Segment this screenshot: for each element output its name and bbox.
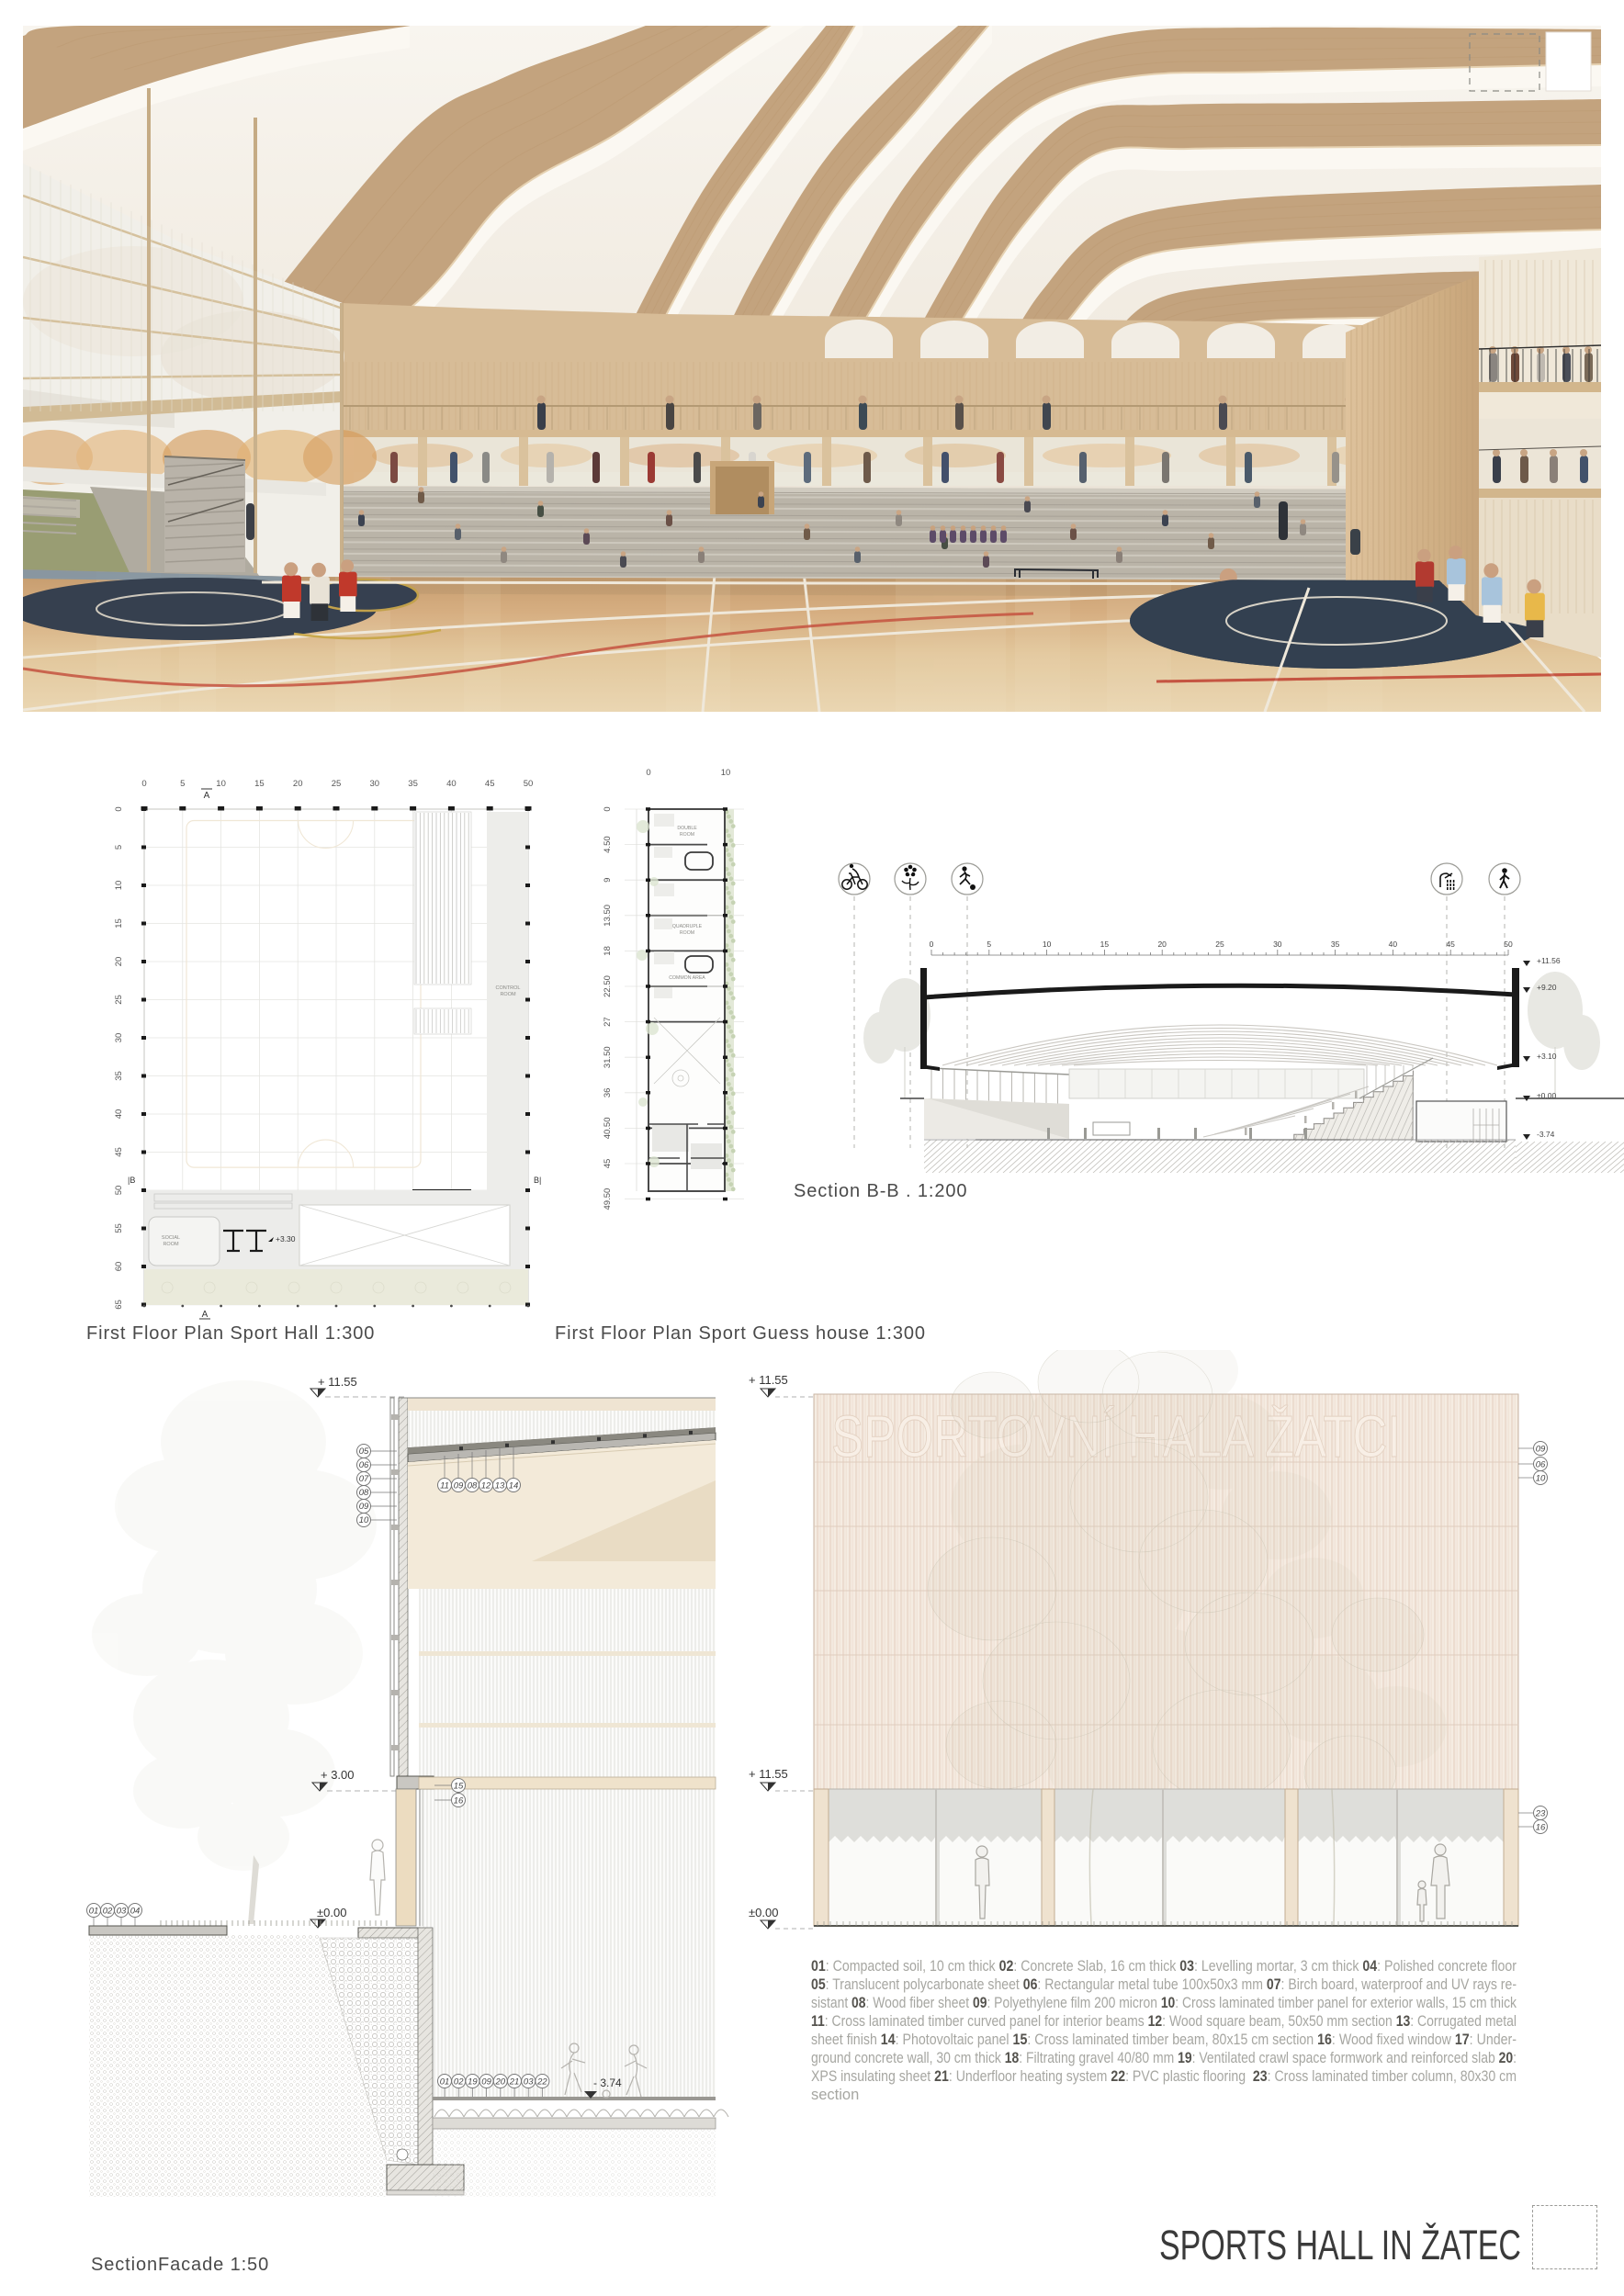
svg-text:13.50: 13.50: [603, 905, 613, 927]
svg-text:COMMON AREA: COMMON AREA: [669, 975, 705, 981]
svg-text:12: 12: [481, 1481, 491, 1491]
svg-text:- 3.74: - 3.74: [593, 2077, 622, 2089]
svg-text:45: 45: [114, 1147, 124, 1157]
svg-text:10: 10: [114, 881, 124, 891]
svg-text:21: 21: [509, 2077, 520, 2088]
svg-text:+ 3.00: + 3.00: [321, 1768, 355, 1782]
svg-text:ROOM: ROOM: [500, 992, 516, 997]
svg-text:ROOM: ROOM: [680, 832, 694, 838]
svg-text:±0.00: ±0.00: [1537, 1091, 1556, 1100]
svg-text:25: 25: [1215, 940, 1224, 949]
svg-text:25: 25: [114, 995, 124, 1005]
svg-text:ROOM: ROOM: [163, 1242, 179, 1247]
svg-text:09: 09: [359, 1502, 369, 1512]
svg-text:-3.74: -3.74: [1537, 1130, 1555, 1139]
svg-text:16: 16: [1536, 1823, 1546, 1833]
svg-text:0: 0: [646, 768, 650, 778]
svg-text:09: 09: [481, 2077, 491, 2088]
svg-text:15: 15: [254, 779, 265, 789]
svg-text:0: 0: [930, 940, 934, 949]
svg-text:06: 06: [359, 1460, 369, 1470]
svg-text:CONTROL: CONTROL: [496, 985, 521, 991]
svg-text:02: 02: [454, 2077, 464, 2088]
svg-text:35: 35: [408, 779, 418, 789]
svg-text:15: 15: [454, 1782, 464, 1792]
svg-text:02: 02: [103, 1907, 113, 1917]
svg-text:ROOM: ROOM: [680, 930, 694, 936]
svg-text:22: 22: [536, 2077, 547, 2088]
svg-text:20: 20: [495, 2077, 506, 2088]
svg-text:20: 20: [1157, 940, 1167, 949]
svg-text:DOUBLE: DOUBLE: [677, 826, 697, 831]
svg-text:±0.00: ±0.00: [749, 1906, 778, 1919]
svg-text:30: 30: [1273, 940, 1282, 949]
svg-text:45: 45: [603, 1159, 613, 1169]
svg-text:09: 09: [454, 1481, 464, 1491]
svg-text:01: 01: [440, 2077, 450, 2088]
svg-text:19: 19: [468, 2077, 478, 2088]
svg-text:|B: |B: [128, 1176, 135, 1185]
svg-text:01: 01: [89, 1907, 99, 1917]
svg-text:36: 36: [603, 1088, 613, 1098]
svg-text:09: 09: [1536, 1445, 1546, 1455]
svg-text:5: 5: [180, 779, 185, 789]
svg-text:30: 30: [114, 1033, 124, 1043]
svg-text:03: 03: [524, 2077, 534, 2088]
svg-text:27: 27: [603, 1017, 613, 1027]
svg-text:40: 40: [446, 779, 457, 789]
svg-text:60: 60: [114, 1262, 124, 1272]
svg-text:50: 50: [114, 1186, 124, 1196]
svg-text:+3.30: +3.30: [276, 1234, 296, 1244]
svg-text:10: 10: [359, 1515, 369, 1525]
svg-text:SOCIAL: SOCIAL: [162, 1235, 180, 1241]
svg-text:5: 5: [114, 845, 124, 850]
svg-text:4.50: 4.50: [603, 836, 613, 853]
svg-text:A: A: [204, 791, 210, 801]
svg-text:10: 10: [216, 779, 226, 789]
svg-text:18: 18: [603, 946, 613, 956]
svg-text:14: 14: [509, 1481, 519, 1491]
svg-text:B|: B|: [534, 1176, 541, 1185]
svg-text:40: 40: [114, 1109, 124, 1120]
svg-text:0: 0: [603, 806, 613, 811]
svg-text:50: 50: [524, 779, 534, 789]
svg-text:22.50: 22.50: [603, 975, 613, 997]
svg-text:15: 15: [1100, 940, 1110, 949]
svg-text:31.50: 31.50: [603, 1046, 613, 1068]
svg-text:20: 20: [293, 779, 303, 789]
svg-text:13: 13: [495, 1481, 505, 1491]
svg-text:10: 10: [1043, 940, 1052, 949]
svg-text:+9.20: +9.20: [1537, 983, 1557, 992]
svg-text:9: 9: [603, 878, 613, 883]
svg-text:5: 5: [987, 940, 991, 949]
svg-text:+11.56: +11.56: [1537, 956, 1561, 965]
svg-text:11: 11: [440, 1481, 449, 1491]
svg-text:23: 23: [1535, 1809, 1546, 1819]
svg-text:05: 05: [359, 1446, 369, 1457]
svg-text:QUADRUPLE: QUADRUPLE: [672, 924, 703, 929]
svg-text:+3.10: +3.10: [1537, 1052, 1557, 1061]
svg-text:08: 08: [359, 1488, 369, 1498]
svg-text:16: 16: [454, 1796, 464, 1806]
svg-text:0: 0: [114, 806, 124, 811]
svg-text:25: 25: [332, 779, 342, 789]
svg-text:+ 11.55: + 11.55: [749, 1767, 788, 1781]
svg-text:45: 45: [1446, 940, 1455, 949]
svg-text:50: 50: [1504, 940, 1513, 949]
svg-text:45: 45: [485, 779, 495, 789]
svg-text:40: 40: [1389, 940, 1398, 949]
svg-text:0: 0: [141, 779, 146, 789]
svg-text:55: 55: [114, 1223, 124, 1233]
svg-text:±0.00: ±0.00: [317, 1906, 346, 1919]
svg-text:04: 04: [130, 1907, 141, 1917]
svg-text:10: 10: [1536, 1474, 1546, 1484]
svg-text:07: 07: [359, 1474, 369, 1484]
svg-text:03: 03: [117, 1907, 127, 1917]
svg-text:06: 06: [1536, 1460, 1546, 1470]
svg-text:20: 20: [114, 957, 124, 967]
svg-text:A: A: [202, 1310, 209, 1320]
svg-text:+ 11.55: + 11.55: [318, 1375, 357, 1389]
svg-text:30: 30: [370, 779, 380, 789]
svg-text:49.50: 49.50: [603, 1188, 613, 1210]
svg-text:+ 11.55: + 11.55: [749, 1373, 788, 1387]
svg-text:15: 15: [114, 918, 124, 929]
svg-text:10: 10: [721, 768, 731, 778]
svg-text:35: 35: [114, 1071, 124, 1081]
svg-text:65: 65: [114, 1300, 124, 1310]
svg-text:40.50: 40.50: [603, 1118, 613, 1140]
svg-text:08: 08: [468, 1481, 478, 1491]
svg-text:35: 35: [1331, 940, 1340, 949]
